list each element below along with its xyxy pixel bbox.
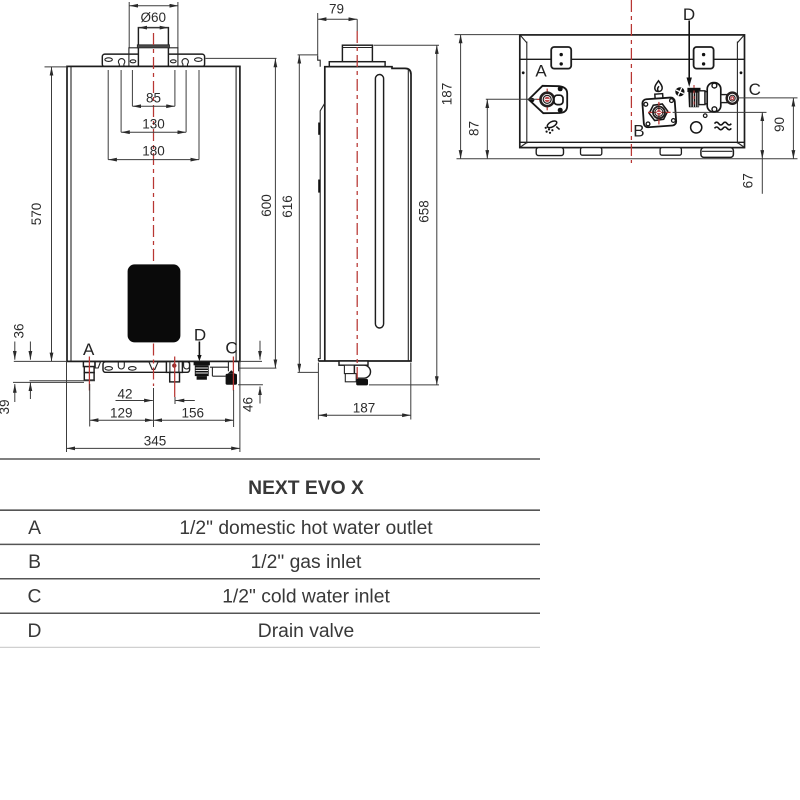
svg-text:B: B — [633, 122, 644, 141]
svg-text:42: 42 — [117, 386, 132, 401]
svg-text:D: D — [683, 5, 695, 24]
svg-text:87: 87 — [466, 121, 481, 136]
svg-text:1/2" cold water inlet: 1/2" cold water inlet — [222, 587, 390, 608]
svg-text:187: 187 — [353, 400, 376, 415]
svg-text:130: 130 — [142, 116, 165, 131]
svg-text:616: 616 — [280, 195, 295, 218]
svg-text:1/2" domestic hot water outlet: 1/2" domestic hot water outlet — [179, 518, 433, 539]
svg-text:36: 36 — [12, 323, 27, 338]
svg-text:C: C — [749, 80, 761, 99]
svg-text:187: 187 — [440, 83, 455, 106]
svg-text:46: 46 — [240, 397, 255, 412]
svg-text:A: A — [28, 518, 41, 539]
svg-text:C: C — [225, 338, 237, 357]
svg-text:A: A — [535, 61, 547, 80]
svg-text:658: 658 — [416, 200, 431, 223]
svg-text:90: 90 — [772, 117, 787, 132]
svg-text:B: B — [28, 552, 41, 573]
svg-text:570: 570 — [29, 203, 44, 226]
svg-text:Ø60: Ø60 — [141, 10, 167, 25]
svg-text:345: 345 — [144, 434, 167, 449]
svg-text:Drain valve: Drain valve — [258, 621, 354, 642]
svg-text:39: 39 — [0, 399, 12, 414]
svg-text:156: 156 — [182, 405, 205, 420]
svg-text:D: D — [194, 325, 206, 344]
svg-text:NEXT EVO X: NEXT EVO X — [248, 478, 364, 499]
svg-text:85: 85 — [146, 91, 161, 106]
svg-text:A: A — [83, 340, 95, 359]
svg-text:D: D — [28, 621, 42, 642]
svg-text:129: 129 — [110, 405, 133, 420]
svg-text:79: 79 — [329, 2, 344, 17]
svg-text:1/2" gas inlet: 1/2" gas inlet — [251, 552, 362, 573]
svg-text:180: 180 — [142, 144, 165, 159]
svg-text:600: 600 — [259, 194, 274, 217]
svg-text:67: 67 — [740, 173, 755, 188]
svg-text:C: C — [28, 587, 42, 608]
